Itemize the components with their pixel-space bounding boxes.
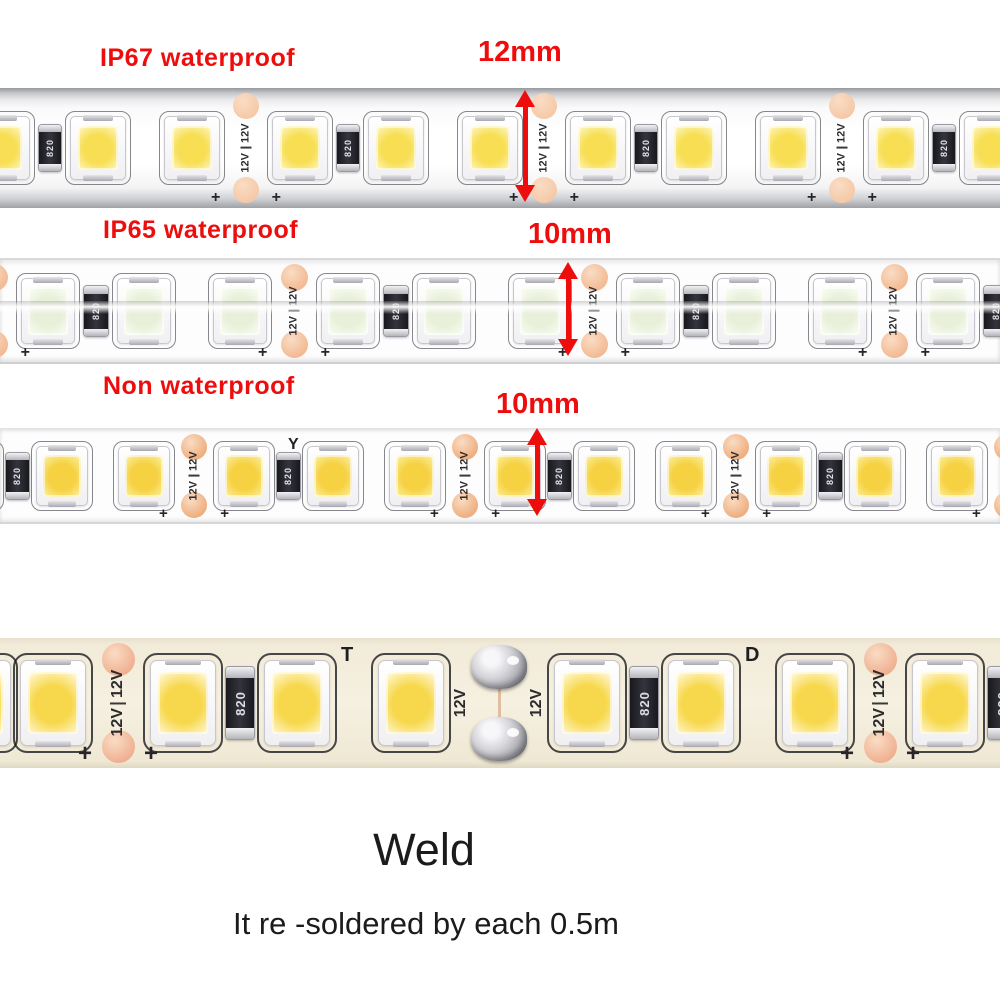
led-2835-package — [378, 660, 444, 746]
resistor-820: 820 — [983, 285, 1000, 337]
strip1-width-label: 12mm — [478, 36, 562, 69]
led-phosphor-chip — [628, 287, 668, 335]
resistor-cap — [548, 492, 571, 499]
led-2835-package — [912, 660, 978, 746]
arrow-head-up-icon — [558, 262, 578, 279]
led-2835-package — [36, 446, 88, 506]
resistor-code: 820 — [232, 691, 247, 716]
trace-gap — [730, 88, 752, 208]
voltage-label: 12V12V — [110, 670, 126, 737]
led-2835-package — [20, 660, 86, 746]
resistor-cap — [819, 492, 842, 499]
resistor-code: 820 — [391, 302, 401, 320]
led-2835-package — [417, 278, 471, 344]
polarity-plus-mark: + — [144, 742, 158, 766]
led-2835-package — [668, 660, 734, 746]
resistor-cap — [277, 492, 300, 499]
led-track: 12V12V++820T12V12V820D12V12V++820 — [0, 638, 1000, 768]
led-2835-package — [0, 116, 30, 180]
led-2835-package — [660, 446, 712, 506]
resistor-cap — [630, 667, 658, 678]
arrow-head-up-icon — [527, 428, 547, 445]
resistor-820: 820 — [5, 452, 30, 500]
resistor-cap — [6, 492, 29, 499]
resistor-820: 820 — [683, 285, 709, 337]
resistor-body: 820 — [988, 678, 1000, 728]
resistor-cap — [39, 164, 61, 171]
solder-blob-top — [471, 645, 527, 689]
resistor-cap — [39, 125, 61, 132]
strip2-width-label: 10mm — [528, 218, 612, 251]
resistor-code: 820 — [284, 467, 294, 485]
led-phosphor-chip — [876, 126, 916, 170]
solder-joint: 12V12V — [453, 638, 545, 768]
polarity-plus-mark: + — [220, 506, 229, 521]
led-phosphor-chip — [78, 126, 118, 170]
resistor-cap — [630, 728, 658, 739]
voltage-text: 12V — [872, 708, 888, 736]
led-2835-package — [272, 116, 328, 180]
resistor-code: 820 — [826, 467, 836, 485]
voltage-text: 12V — [110, 708, 126, 736]
led-strip-ip67: 12V12V++82012V12V++82012V12V++82012V12V+… — [0, 88, 1000, 208]
trace-gap — [636, 430, 654, 522]
led-strip-weld-closeup: 12V12V++820T12V12V820D12V12V++820 — [0, 638, 1000, 768]
led-phosphor-chip — [520, 287, 560, 335]
voltage-text: 12V — [460, 451, 471, 477]
voltage-text: 12V — [539, 153, 550, 173]
cut-point: 12V12V++ — [875, 264, 913, 358]
led-phosphor-chip — [225, 455, 263, 497]
led-phosphor-chip — [920, 672, 970, 734]
copper-pad-bottom — [994, 492, 1000, 518]
voltage-label: 12V — [528, 689, 546, 717]
resistor-code: 820 — [91, 302, 101, 320]
resistor-cap — [226, 728, 254, 739]
resistor-820: 820 — [383, 285, 409, 337]
copper-pad-bottom — [0, 331, 8, 358]
led-2835-package — [70, 116, 126, 180]
cut-point: 12V12V++ — [0, 264, 13, 358]
voltage-label: 12V12V — [460, 451, 471, 500]
arrow-shaft — [523, 107, 528, 185]
trace-gap — [134, 88, 156, 208]
solder-blobs — [470, 638, 528, 768]
led-2835-package — [760, 446, 812, 506]
led-phosphor-chip — [578, 126, 618, 170]
resistor-code: 820 — [641, 139, 651, 157]
resistor-820: 820 — [336, 124, 360, 172]
led-2835-package — [868, 116, 924, 180]
trace-gap — [479, 260, 505, 362]
led-2835-package — [462, 116, 518, 180]
strip1-label: IP67 waterproof — [100, 44, 295, 73]
voltage-text: 12V — [837, 123, 848, 149]
resistor-820: 820 — [629, 666, 659, 740]
voltage-text: 12V — [241, 123, 252, 149]
strip1-dimension-arrow — [515, 90, 535, 202]
solder-blob-bottom — [471, 717, 527, 761]
led-2835-package — [931, 446, 983, 506]
weld-subtitle: It re -soldered by each 0.5m — [233, 906, 619, 942]
led-2835-package — [782, 660, 848, 746]
resistor-cap — [277, 453, 300, 460]
voltage-text: 12V — [731, 481, 742, 501]
arrow-head-up-icon — [515, 90, 535, 107]
resistor-cap — [548, 453, 571, 460]
copper-pad-bottom — [233, 177, 259, 203]
resistor-820: 820 — [38, 124, 62, 172]
voltage-label: 12V — [452, 689, 470, 717]
resistor-body: 820 — [635, 132, 657, 164]
voltage-text: 12V — [589, 286, 600, 312]
voltage-text: 12V — [460, 481, 471, 501]
resistor-820: 820 — [547, 452, 572, 500]
cut-point: 12V12V++ — [989, 434, 1000, 519]
led-strip-product-image: IP67 waterproof 12mm 12V12V++82012V12V++… — [0, 0, 1000, 1000]
voltage-label: 12V12V — [872, 670, 888, 737]
voltage-label: 12V12V — [889, 286, 900, 335]
led-2835-package — [849, 446, 901, 506]
led-phosphor-chip — [280, 126, 320, 170]
led-track: 12V12V++82012V12V++82012V12V++82012V12V+… — [0, 260, 1000, 362]
led-phosphor-chip — [28, 672, 78, 734]
trace-gap: D — [743, 638, 773, 768]
led-2835-package — [666, 116, 722, 180]
led-2835-package — [150, 660, 216, 746]
cut-point: 12V12V++ — [447, 434, 483, 519]
led-phosphor-chip — [938, 455, 976, 497]
resistor-cap — [684, 329, 708, 337]
copper-pad-bottom — [829, 177, 855, 203]
led-2835-package — [321, 278, 375, 344]
resistor-body: 820 — [337, 132, 359, 164]
polarity-plus-mark: + — [159, 506, 168, 521]
resistor-body: 820 — [277, 460, 300, 492]
led-2835-package — [760, 116, 816, 180]
led-2835-package — [554, 660, 620, 746]
resistor-body: 820 — [984, 294, 1000, 329]
arrow-head-down-icon — [527, 499, 547, 516]
led-phosphor-chip — [768, 126, 808, 170]
polarity-plus-mark: + — [840, 742, 854, 766]
led-2835-package — [717, 278, 771, 344]
resistor-body: 820 — [384, 294, 408, 329]
resistor-body: 820 — [39, 132, 61, 164]
resistor-body: 820 — [630, 678, 658, 728]
led-phosphor-chip — [972, 126, 1000, 170]
trace-gap — [779, 260, 805, 362]
resistor-body: 820 — [933, 132, 955, 164]
arrow-shaft — [535, 445, 540, 499]
polarity-plus-mark: + — [807, 190, 816, 206]
weld-title: Weld — [373, 824, 475, 876]
arrow-head-down-icon — [515, 185, 535, 202]
led-2835-package — [117, 278, 171, 344]
led-phosphor-chip — [376, 126, 416, 170]
led-phosphor-chip — [328, 287, 368, 335]
copper-pad-top — [0, 264, 8, 291]
polarity-plus-mark: + — [868, 190, 877, 206]
polarity-plus-mark: + — [972, 506, 981, 521]
resistor-code: 820 — [994, 691, 1000, 716]
voltage-text: 12V — [837, 153, 848, 173]
cut-point: 12V12V++ — [824, 93, 860, 203]
led-phosphor-chip — [674, 126, 714, 170]
resistor-820: 820 — [987, 666, 1000, 740]
voltage-text: 12V — [589, 316, 600, 336]
voltage-text: 12V — [241, 153, 252, 173]
resistor-cap — [988, 667, 1000, 678]
strip3-width-label: 10mm — [496, 388, 580, 421]
resistor-body: 820 — [226, 678, 254, 728]
copper-pad-top — [994, 434, 1000, 460]
resistor-820: 820 — [818, 452, 843, 500]
led-phosphor-chip — [314, 455, 352, 497]
trace-gap — [365, 430, 383, 522]
voltage-text: 12V — [189, 481, 200, 501]
polarity-plus-mark: + — [491, 506, 500, 521]
polarity-plus-mark: + — [921, 345, 930, 361]
led-2835-package — [213, 278, 267, 344]
trace-gap — [432, 88, 454, 208]
strip3-dimension-arrow — [527, 428, 547, 516]
resistor-cap — [384, 329, 408, 337]
copper-pad-top — [829, 93, 855, 119]
voltage-label: 12V12V — [589, 286, 600, 335]
led-track: 12V12V++82012V12V++82012V12V++82012V12V+… — [0, 430, 1000, 522]
voltage-label: 12V12V — [289, 286, 300, 335]
strip3-label: Non waterproof — [103, 372, 295, 401]
resistor-code: 820 — [555, 467, 565, 485]
resistor-code: 820 — [991, 302, 1000, 320]
led-phosphor-chip — [767, 455, 805, 497]
polarity-plus-mark: + — [570, 190, 579, 206]
led-phosphor-chip — [724, 287, 764, 335]
resistor-cap — [933, 125, 955, 132]
led-2835-package — [164, 116, 220, 180]
led-2835-package — [0, 660, 11, 746]
led-phosphor-chip — [158, 672, 208, 734]
polarity-plus-mark: + — [701, 506, 710, 521]
polarity-plus-mark: + — [321, 345, 330, 361]
resistor-cap — [984, 286, 1000, 294]
led-2835-package — [389, 446, 441, 506]
led-phosphor-chip — [396, 455, 434, 497]
led-2835-package — [21, 278, 75, 344]
led-2835-package — [621, 278, 675, 344]
resistor-820: 820 — [83, 285, 109, 337]
arrow-shaft — [566, 279, 571, 339]
cut-point: 12V12V++ — [718, 434, 754, 519]
voltage-text: 12V — [289, 316, 300, 336]
led-phosphor-chip — [0, 672, 3, 734]
resistor-820: 820 — [225, 666, 255, 740]
strip2-label: IP65 waterproof — [103, 216, 298, 245]
resistor-body: 820 — [819, 460, 842, 492]
resistor-code: 820 — [343, 139, 353, 157]
polarity-plus-mark: + — [211, 190, 220, 206]
led-strip-ip65: 12V12V++82012V12V++82012V12V++82012V12V+… — [0, 258, 1000, 364]
led-track: 12V12V++82012V12V++82012V12V++82012V12V+… — [0, 88, 1000, 208]
voltage-text: 12V — [889, 316, 900, 336]
voltage-label: 12V12V — [241, 123, 252, 172]
voltage-text: 12V — [189, 451, 200, 477]
resistor-cap — [337, 164, 359, 171]
voltage-label: 12V12V — [837, 123, 848, 172]
trace-gap — [179, 260, 205, 362]
led-2835-package — [964, 116, 1000, 180]
led-phosphor-chip — [928, 287, 968, 335]
led-2835-package — [570, 116, 626, 180]
led-phosphor-chip — [820, 287, 860, 335]
polarity-plus-mark: + — [272, 190, 281, 206]
arrow-head-down-icon — [558, 339, 578, 356]
led-phosphor-chip — [790, 672, 840, 734]
trace-gap: T — [339, 638, 369, 768]
cut-point: 12V12V++ — [575, 264, 613, 358]
led-2835-package — [307, 446, 359, 506]
voltage-text: 12V — [539, 123, 550, 149]
voltage-text: 12V — [889, 286, 900, 312]
led-phosphor-chip — [172, 126, 212, 170]
led-strip-non-waterproof: 12V12V++82012V12V++82012V12V++82012V12V+… — [0, 428, 1000, 524]
resistor-cap — [384, 286, 408, 294]
led-phosphor-chip — [424, 287, 464, 335]
polarity-plus-mark: + — [21, 345, 30, 361]
voltage-label: 12V12V — [539, 123, 550, 172]
resistor-cap — [933, 164, 955, 171]
polarity-plus-mark: + — [258, 345, 267, 361]
silkscreen-mark: D — [745, 644, 759, 667]
voltage-label: 12V12V — [189, 451, 200, 500]
resistor-cap — [226, 667, 254, 678]
cut-point: 12V12V++ — [95, 643, 141, 763]
voltage-text: 12V — [289, 286, 300, 312]
trace-gap — [94, 430, 112, 522]
resistor-cap — [984, 329, 1000, 337]
led-phosphor-chip — [562, 672, 612, 734]
resistor-cap — [6, 453, 29, 460]
led-phosphor-chip — [856, 455, 894, 497]
polarity-plus-mark: + — [906, 742, 920, 766]
resistor-cap — [635, 125, 657, 132]
resistor-body: 820 — [548, 460, 571, 492]
resistor-820: 820 — [634, 124, 658, 172]
silkscreen-mark: T — [341, 644, 353, 667]
resistor-cap — [988, 728, 1000, 739]
resistor-body: 820 — [684, 294, 708, 329]
led-phosphor-chip — [272, 672, 322, 734]
resistor-code: 820 — [13, 467, 23, 485]
cut-point: 12V12V++ — [176, 434, 212, 519]
polarity-plus-mark: + — [858, 345, 867, 361]
resistor-cap — [84, 286, 108, 294]
led-2835-package — [813, 278, 867, 344]
voltage-text: 12V — [872, 670, 888, 704]
cut-point: 12V12V++ — [228, 93, 264, 203]
resistor-cap — [684, 286, 708, 294]
led-phosphor-chip — [28, 287, 68, 335]
led-phosphor-chip — [585, 455, 623, 497]
resistor-body: 820 — [84, 294, 108, 329]
led-2835-package — [118, 446, 170, 506]
led-2835-package — [921, 278, 975, 344]
led-phosphor-chip — [220, 287, 260, 335]
cut-point: 12V12V++ — [275, 264, 313, 358]
cut-point: 12V12V++ — [857, 643, 903, 763]
strip2-dimension-arrow — [558, 262, 578, 356]
resistor-code: 820 — [691, 302, 701, 320]
polarity-plus-mark: + — [78, 742, 92, 766]
led-phosphor-chip — [125, 455, 163, 497]
resistor-cap — [337, 125, 359, 132]
resistor-820: 820 — [276, 452, 301, 500]
led-phosphor-chip — [386, 672, 436, 734]
led-2835-package — [264, 660, 330, 746]
led-phosphor-chip — [676, 672, 726, 734]
polarity-plus-mark: + — [430, 506, 439, 521]
silkscreen-mark: Y — [288, 436, 299, 454]
polarity-plus-mark: + — [762, 506, 771, 521]
copper-pad-top — [233, 93, 259, 119]
led-phosphor-chip — [43, 455, 81, 497]
voltage-text: 12V — [110, 670, 126, 704]
led-phosphor-chip — [124, 287, 164, 335]
led-2835-package — [368, 116, 424, 180]
resistor-body: 820 — [6, 460, 29, 492]
voltage-label: 12V12V — [731, 451, 742, 500]
led-phosphor-chip — [667, 455, 705, 497]
polarity-plus-mark: + — [621, 345, 630, 361]
resistor-code: 820 — [939, 139, 949, 157]
resistor-code: 820 — [45, 139, 55, 157]
led-2835-package — [218, 446, 270, 506]
voltage-text: 12V — [731, 451, 742, 477]
led-phosphor-chip — [0, 126, 22, 170]
resistor-code: 820 — [636, 691, 651, 716]
resistor-cap — [819, 453, 842, 460]
resistor-820: 820 — [932, 124, 956, 172]
trace-gap — [907, 430, 925, 522]
resistor-cap — [635, 164, 657, 171]
led-2835-package — [578, 446, 630, 506]
led-phosphor-chip — [470, 126, 510, 170]
resistor-cap — [84, 329, 108, 337]
